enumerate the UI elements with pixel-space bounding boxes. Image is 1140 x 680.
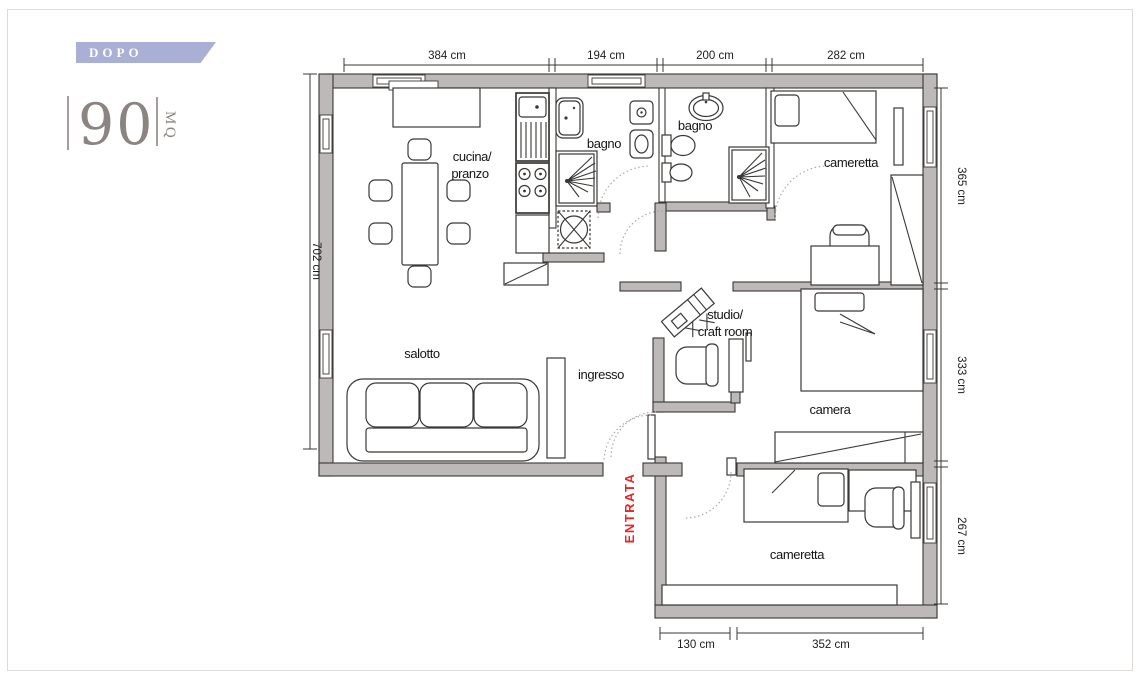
- dopo-ribbon-badge: DOPO: [76, 42, 216, 63]
- chair: [369, 180, 392, 201]
- wardrobe: [662, 585, 897, 605]
- radiator: [911, 482, 920, 538]
- room-label-bedroom1: cameretta: [824, 155, 879, 170]
- bidet-icon: [662, 163, 692, 182]
- area-value: 90: [78, 97, 155, 154]
- bathroom2-fixtures: [662, 93, 769, 203]
- entrance-label: ENTRATA: [622, 473, 637, 544]
- wall-living-bottom: [319, 463, 603, 476]
- shower-icon: [729, 147, 769, 203]
- oval-sink-icon: [689, 93, 723, 121]
- dopo-ribbon-label: DOPO: [76, 42, 216, 63]
- toilet-icon: [662, 135, 695, 156]
- chair: [447, 223, 470, 244]
- dimension-left-1: 702 cm: [310, 242, 322, 280]
- dimension-bottom-1: 130 cm: [677, 639, 715, 651]
- washing-machine-icon: [558, 211, 590, 248]
- bedroom1-furniture: [771, 91, 923, 285]
- small-sink-icon: [630, 101, 653, 124]
- studio-furniture: [661, 288, 751, 392]
- room-label-kitchen-line2: pranzo: [451, 166, 489, 181]
- double-bed: [801, 289, 923, 391]
- desk-and-chair: [676, 333, 751, 392]
- dimension-right-2: 333 cm: [955, 356, 967, 394]
- chair: [369, 223, 392, 244]
- wall-entrance-jamb: [643, 463, 682, 476]
- master-bedroom-furniture: [775, 289, 923, 463]
- toilet-icon: [630, 130, 653, 158]
- chair: [408, 139, 431, 160]
- bathroom1-fixtures: [556, 98, 653, 248]
- dimension-top-4: 282 cm: [827, 50, 865, 62]
- washbasin-icon: [556, 98, 583, 138]
- shower-icon: [556, 151, 597, 206]
- chair: [447, 180, 470, 201]
- room-label-kitchen-line1: cucina/: [453, 149, 492, 164]
- window-left-kitchen: [320, 115, 332, 153]
- kitchen-cabinet: [516, 215, 549, 253]
- desk-and-chair: [811, 225, 879, 285]
- area-divider-right: [156, 97, 158, 146]
- room-label-bathroom1: bagno: [587, 136, 621, 151]
- window-right-camera: [924, 330, 936, 383]
- wardrobe: [891, 175, 923, 285]
- stove-icon: [516, 163, 549, 213]
- bedroom2-furniture: [662, 469, 920, 605]
- floor-plan-drawing: 384 cm 194 cm 200 cm 282 cm 702 cm 365 c…: [0, 0, 1140, 680]
- door-arc-bedroom1: [775, 166, 828, 219]
- room-label-hall: ingresso: [578, 367, 624, 382]
- area-divider-left: [67, 96, 69, 150]
- wall-kitchen-bath1: [549, 88, 556, 228]
- dimension-right-3: 267 cm: [955, 517, 967, 555]
- window-top-bath: [588, 75, 645, 87]
- wardrobe: [775, 432, 923, 463]
- door-arc-entrance: [604, 415, 651, 462]
- window-left-living: [320, 330, 332, 378]
- kitchen-shelf: [504, 263, 548, 285]
- room-label-bathroom2: bagno: [678, 118, 712, 133]
- dimension-top-2: 194 cm: [587, 50, 625, 62]
- radiator: [894, 108, 903, 165]
- wall-bottom: [655, 605, 937, 618]
- window-right-bedroom1: [924, 107, 936, 167]
- kitchen-sink-icon: [516, 93, 549, 161]
- dimension-bottom-2: 352 cm: [812, 639, 850, 651]
- wall-jamb-bath1: [597, 203, 610, 212]
- fridge-unit: [393, 88, 480, 127]
- kitchen-furniture: [369, 88, 549, 287]
- wall-studio-horizontal: [653, 402, 735, 412]
- entrance-door-leaf: [648, 415, 655, 459]
- wall-corridor: [620, 282, 681, 291]
- window-right-bedroom2: [924, 483, 936, 543]
- floor-plan-page: DOPO 90 MQ: [0, 0, 1140, 680]
- room-label-studio-line1: studio/: [707, 307, 743, 322]
- single-bed: [744, 469, 848, 522]
- wall-corridor-stub: [655, 203, 666, 251]
- dimension-top-3: 200 cm: [696, 50, 734, 62]
- dimension-top-1: 384 cm: [428, 50, 466, 62]
- hall-cabinet: [547, 358, 565, 458]
- room-label-camera: camera: [810, 402, 852, 417]
- desk-and-chair: [849, 470, 916, 529]
- area-unit: MQ: [161, 111, 178, 140]
- dimension-right-1: 365 cm: [955, 167, 967, 205]
- wall-studio-vertical: [653, 338, 664, 412]
- room-label-living: salotto: [404, 346, 440, 361]
- wall-kitchen-stub: [543, 253, 604, 262]
- room-label-bedroom2: cameretta: [770, 547, 825, 562]
- single-bed: [771, 91, 876, 143]
- room-label-studio-line2: craft room: [698, 324, 753, 339]
- sofa: [347, 379, 539, 461]
- wall-hall-right: [655, 457, 666, 605]
- chair: [408, 266, 431, 287]
- door-arc-bedroom2: [685, 472, 731, 518]
